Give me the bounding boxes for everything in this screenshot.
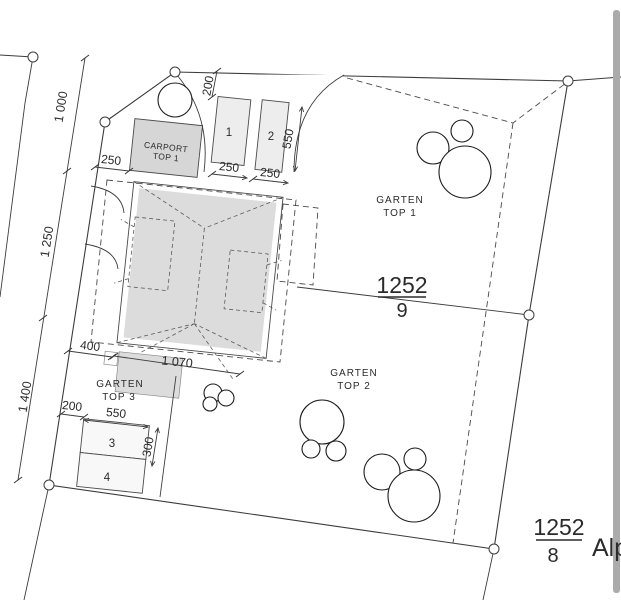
dimension-250-stall1-line — [212, 174, 247, 178]
boundary-extension-southeast — [483, 549, 494, 600]
parking-space-4 — [77, 453, 146, 494]
dimension-250-stall2: 250 — [259, 165, 281, 181]
parking-space-2-label: 2 — [268, 131, 274, 143]
dimension-200-bottom: 200 — [61, 398, 83, 414]
boundary-extension-southwest — [24, 485, 49, 600]
tree-group-small-center — [203, 384, 234, 411]
site-plan: CARPORT TOP 1 1 2 3 4 — [0, 0, 621, 600]
dimension-1000: 1 000 — [52, 90, 71, 123]
garden2-label-line1: GARTEN — [330, 368, 378, 379]
garden2-label-line2: TOP 2 — [337, 381, 371, 392]
garden3-label-line1: GARTEN — [96, 379, 144, 390]
parking-space-3-label: 3 — [109, 438, 115, 450]
tree-group-garden2-bottom — [364, 448, 440, 522]
parcel-neighbor-denominator: 8 — [547, 545, 558, 567]
dimension-550-bottom: 550 — [105, 405, 127, 421]
tree-group-garden1 — [417, 120, 491, 198]
garden1-label-line2: TOP 1 — [383, 208, 417, 219]
parcel-main-denominator: 9 — [396, 300, 407, 322]
garden3-label-line2: TOP 3 — [102, 392, 136, 403]
parking-space-4-label: 4 — [104, 472, 111, 484]
dimension-400: 400 — [79, 338, 101, 354]
parcel-neighbor-number: 1252 — [533, 514, 584, 540]
street-name-label: Alp — [592, 534, 621, 562]
parking-space-1-label: 1 — [226, 127, 232, 139]
tree-group-garden2-mid — [300, 400, 346, 461]
tree-top-corner — [158, 83, 192, 117]
parcel-number-main: 1252 9 — [376, 272, 427, 322]
site-plan-drawing: CARPORT TOP 1 1 2 3 4 — [0, 0, 621, 600]
dimension-250-carport-line — [95, 167, 129, 171]
garden1-label-line1: GARTEN — [376, 195, 424, 206]
parcel-number-neighbor: 1252 8 — [533, 514, 584, 567]
dimension-200-bottom-line — [61, 414, 84, 417]
dimension-250-stall1: 250 — [218, 159, 240, 175]
dimension-1400: 1 400 — [16, 380, 35, 413]
street-edge-bar — [613, 10, 620, 593]
parcel-main-number: 1252 — [376, 272, 427, 298]
dimension-250-carport: 250 — [100, 152, 122, 168]
road-line-west — [0, 55, 33, 297]
